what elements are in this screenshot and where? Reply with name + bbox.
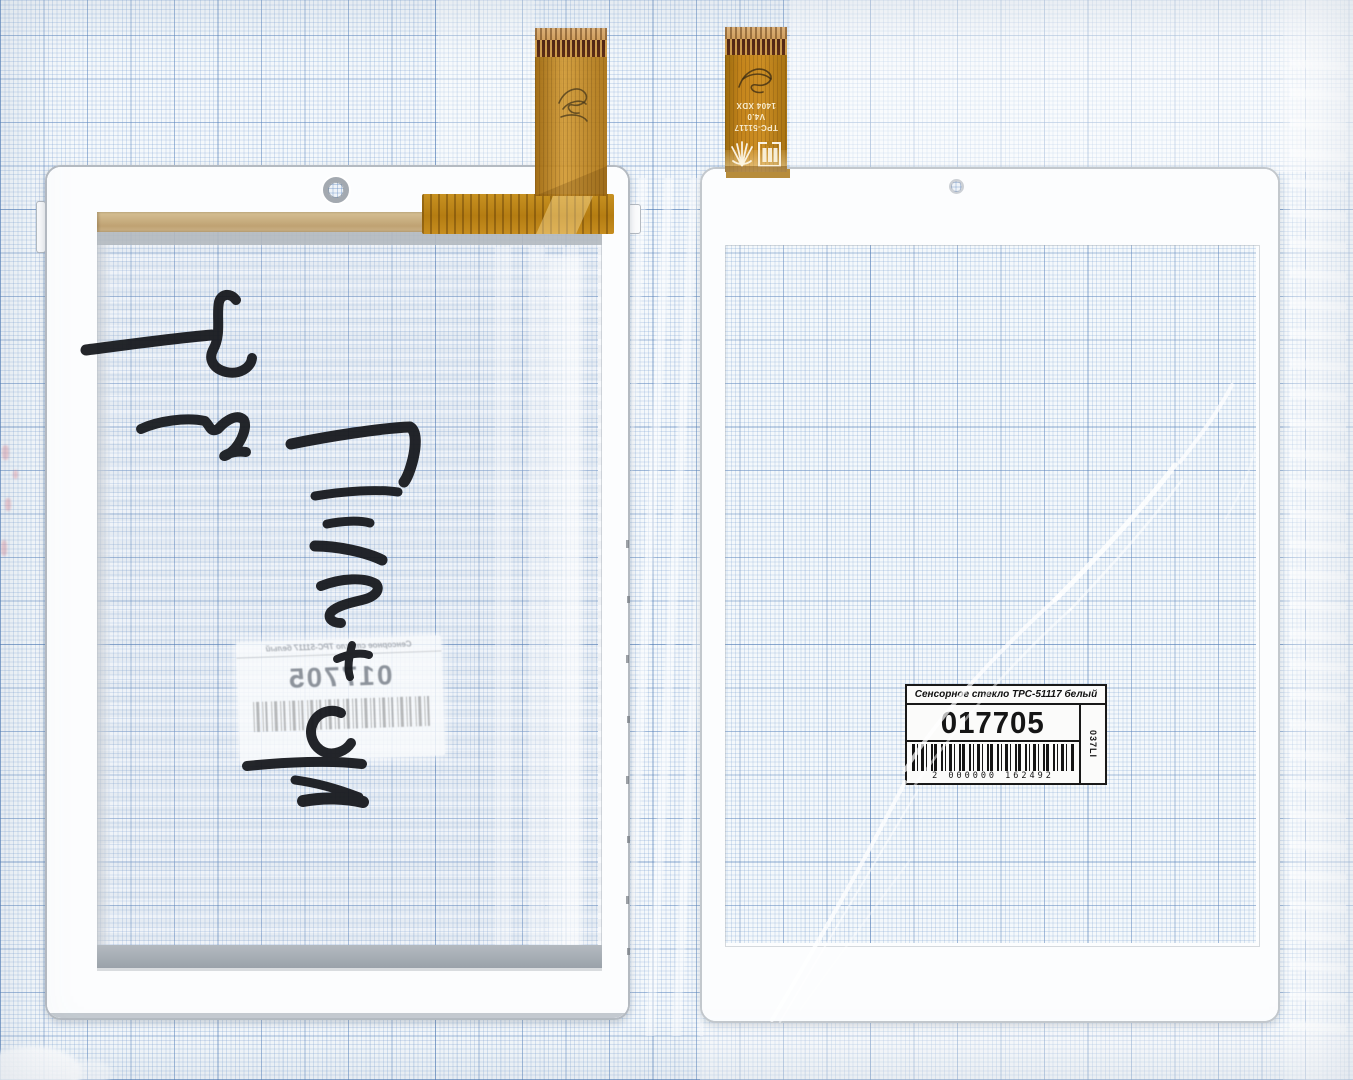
- flex-datecode-text: 1404 XDX: [725, 100, 787, 111]
- label-barcode-cell: 2 000000 162492: [907, 742, 1079, 783]
- flex-body: TPC-51117 V4.0 1404 XDX: [725, 55, 787, 172]
- glass-reflection-band: [547, 257, 583, 957]
- glass-area-front: [725, 245, 1260, 947]
- glass-edge-left: [97, 245, 110, 969]
- mirrored-label-barcode: [252, 696, 430, 732]
- flex-print-block: TPC-51117 V4.0 1404 XDX: [725, 97, 787, 135]
- camera-hole: [323, 177, 349, 203]
- paper-wash-top-left: [438, 0, 534, 166]
- digitizer-front-panel: Сенсорное стекло TPC-51117 белый 017705 …: [700, 167, 1280, 1023]
- flex-bond-line: [725, 166, 787, 172]
- camera-hole: [949, 179, 964, 194]
- digitizer-back-panel: Сенсорное стекло TPC-51117 белый 017705: [45, 165, 630, 1020]
- paper-smudge: [13, 470, 18, 479]
- label-number: 017705: [907, 705, 1079, 742]
- packaging-film-between-panels: [631, 178, 703, 1036]
- paper-wash-top-right: [790, 0, 1353, 172]
- paper-smudge: [5, 498, 11, 511]
- bezel-left: [702, 169, 725, 1021]
- paper-smudge: [2, 445, 9, 460]
- label-title: Сенсорное стекло TPC-51117 белый: [907, 686, 1105, 705]
- mirrored-label-number: 017705: [237, 651, 443, 702]
- flex-body: [535, 57, 607, 196]
- bezel-top: [702, 169, 1278, 245]
- label-side-code: 037LI: [1088, 730, 1098, 758]
- adhesive-strip-bottom: [97, 945, 602, 968]
- flex-print-rotated: TPC-51117 V4.0 1404 XDX: [725, 100, 787, 133]
- flex-cable-left: [535, 28, 607, 196]
- bezel-right: [598, 167, 628, 1018]
- flex-stiffener: [725, 39, 787, 55]
- bezel-bottom: [702, 943, 1278, 1021]
- glass-edge-bottom: [97, 968, 602, 971]
- flex-contacts: [725, 27, 787, 39]
- flex-model-text: TPC-51117 V4.0: [725, 111, 787, 133]
- factory-stamp-squiggle: [731, 57, 781, 97]
- mirrored-label: Сенсорное стекло TPC-51117 белый 017705: [236, 635, 445, 762]
- flex-stiffener: [535, 40, 607, 57]
- label-number-text: 017705: [941, 705, 1045, 741]
- paper-smudge: [1, 540, 7, 556]
- barcode: [912, 744, 1074, 771]
- paper-wash-bottom: [700, 1023, 1353, 1080]
- inventory-label: Сенсорное стекло TPC-51117 белый 017705 …: [905, 684, 1107, 785]
- packaging-film-streaks: [1290, 60, 1346, 1040]
- bezel-left: [47, 167, 97, 1018]
- barcode-digits: 2 000000 162492: [912, 771, 1074, 782]
- packaging-blob: [68, 1060, 112, 1080]
- flex-contacts: [535, 28, 607, 40]
- photo-scene: Сенсорное стекло TPC-51117 белый 017705 …: [0, 0, 1353, 1080]
- bezel-bottom: [47, 963, 628, 1018]
- label-main: 017705 2 000000 162492 037LI: [907, 705, 1105, 783]
- label-side-column: 037LI: [1081, 705, 1105, 783]
- label-left-column: 017705 2 000000 162492: [907, 705, 1081, 783]
- flex-cable-right: TPC-51117 V4.0 1404 XDX: [725, 27, 787, 172]
